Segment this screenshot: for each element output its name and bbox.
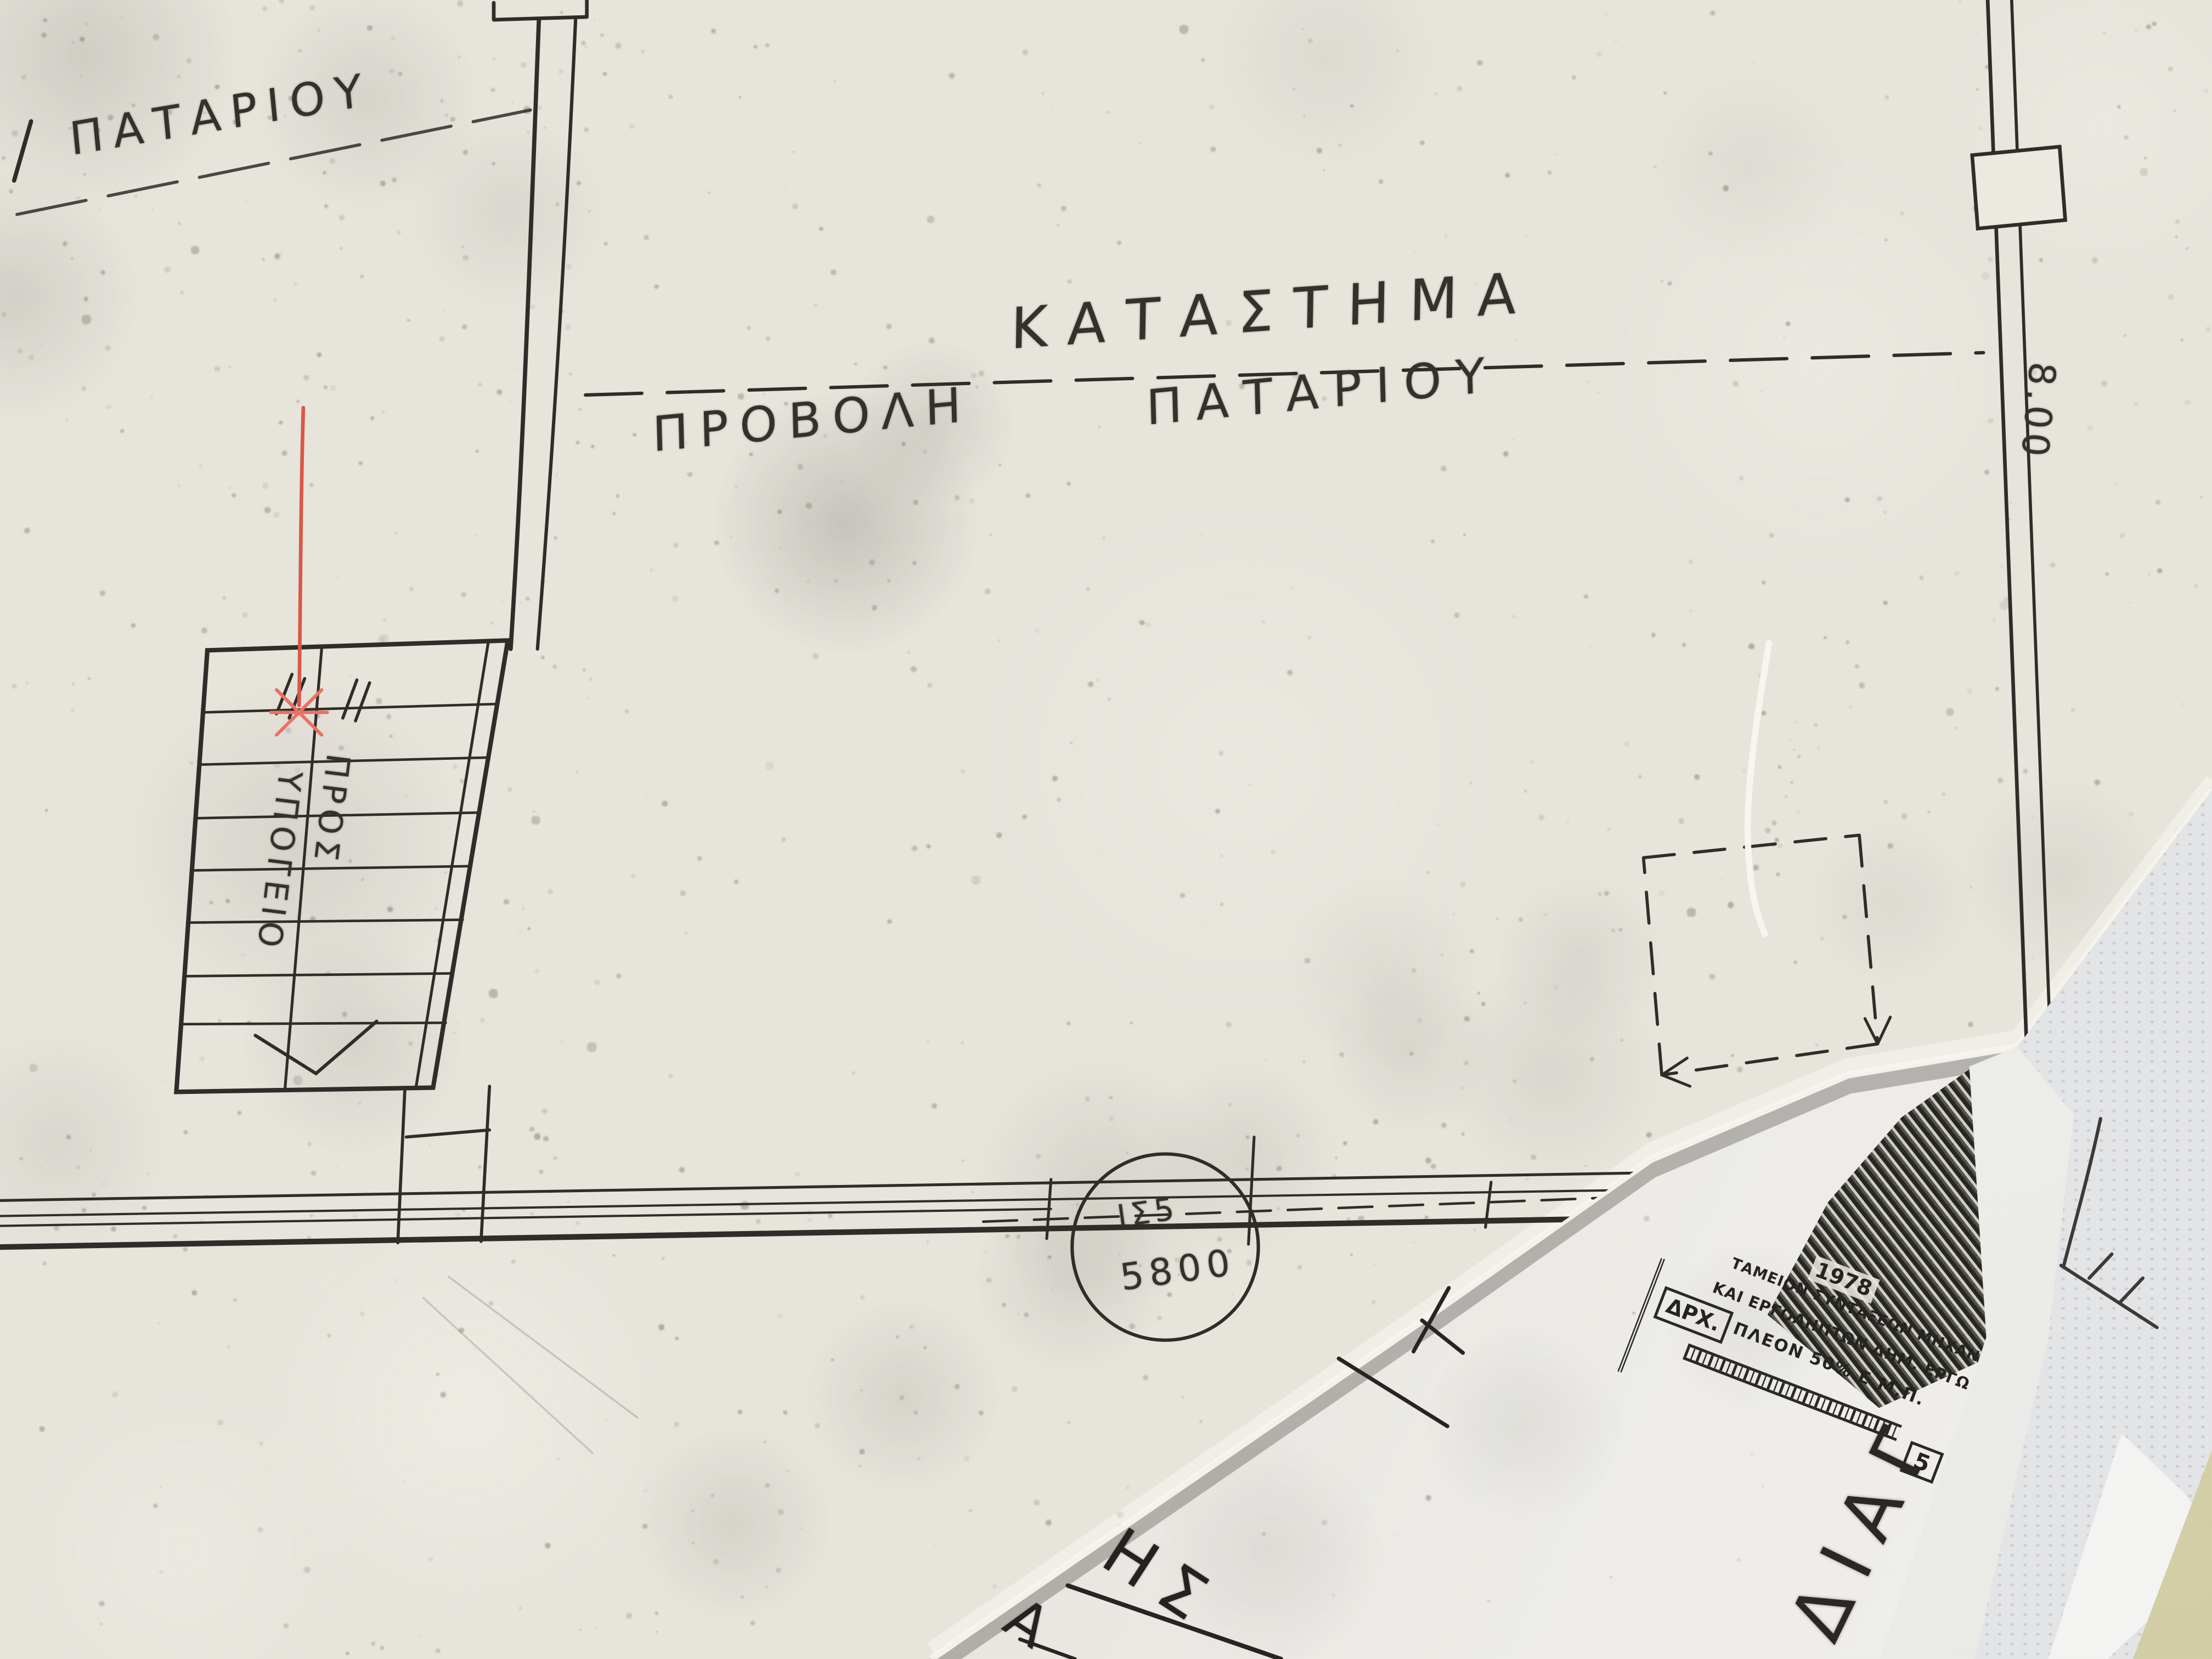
third-sheet-dimension-mark (2061, 1119, 2157, 1328)
under-sheet-k-mark (1339, 1288, 1463, 1426)
photo-stage: ΤΑΜΕΙΟΝ ΣΥΝΤΑΞΕΩΝ ΜΗΧΑΝΙΚΩΝ ΚΑΙ ΕΡΓΟΛΗΠΤ… (0, 0, 2212, 1659)
photo-of-blueprint: ΤΑΜΕΙΟΝ ΣΥΝΤΑΞΕΩΝ ΜΗΧΑΝΙΚΩΝ ΚΑΙ ΕΡΓΟΛΗΠΤ… (0, 0, 2212, 1659)
dimension-800: 8.00 (2012, 360, 2063, 462)
